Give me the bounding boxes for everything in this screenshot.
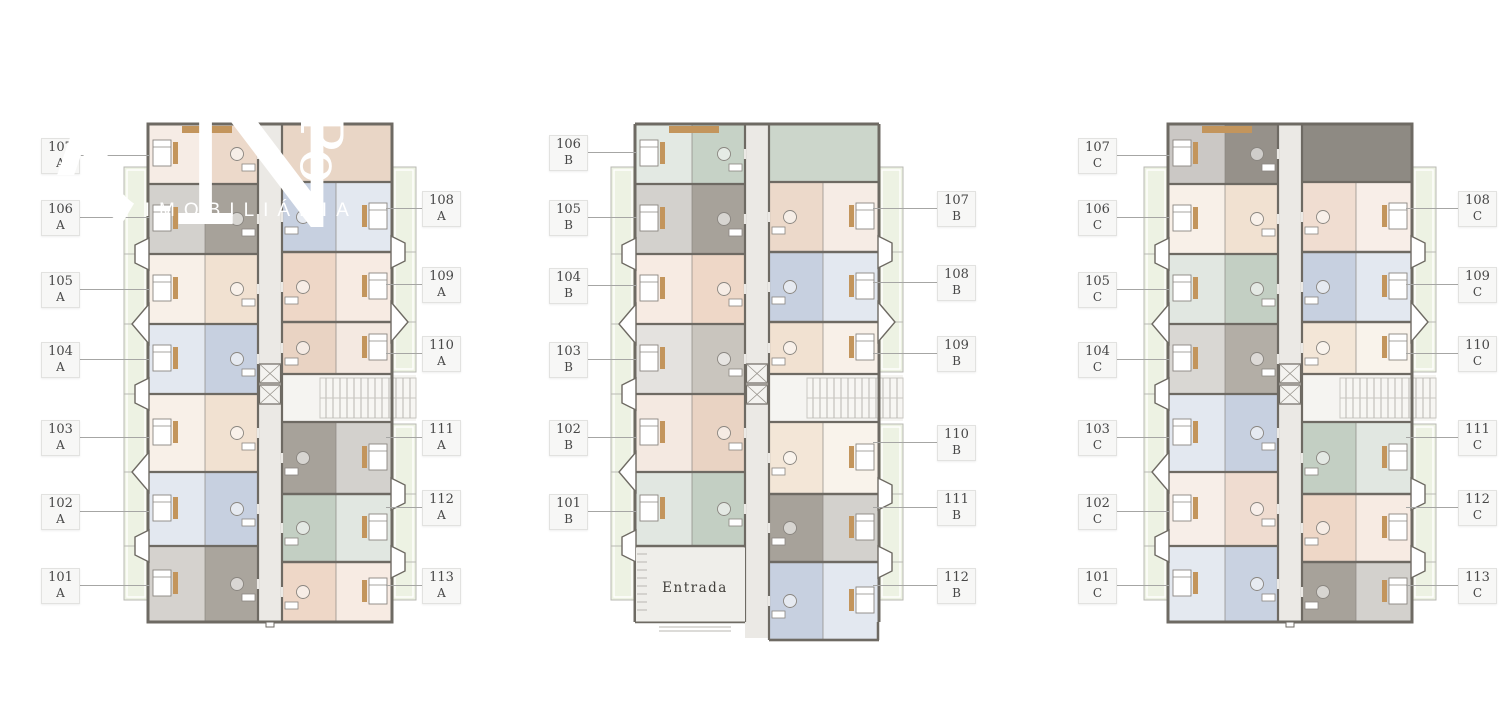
unit-label-110-C: 110C — [1458, 336, 1497, 372]
unit-label-105-C: 105C — [1078, 272, 1117, 308]
unit-label-102-C: 102C — [1078, 494, 1117, 530]
unit-block-letter: C — [1079, 290, 1116, 304]
unit-block-letter: A — [42, 438, 79, 452]
leader-line — [587, 152, 637, 153]
unit-label-113-C: 113C — [1458, 568, 1497, 604]
leader-line — [873, 442, 937, 443]
unit-number: 106 — [550, 137, 587, 153]
unit-number: 107 — [938, 193, 975, 209]
leader-line — [79, 289, 150, 290]
unit-number: 104 — [1079, 344, 1116, 360]
unit-number: 108 — [938, 267, 975, 283]
leader-line — [1406, 284, 1458, 285]
unit-block-letter: A — [42, 360, 79, 374]
unit-number: 110 — [423, 338, 460, 354]
unit-number: 111 — [938, 492, 975, 508]
leader-line — [386, 437, 422, 438]
unit-block-letter: C — [1079, 218, 1116, 232]
unit-block-letter: B — [550, 153, 587, 167]
leader-line — [79, 511, 150, 512]
unit-label-104-A: 104A — [41, 342, 80, 378]
leader-line — [79, 585, 150, 586]
entrance-lobby: Entrada — [636, 548, 745, 632]
unit-number: 106 — [42, 202, 79, 218]
unit-number: 106 — [1079, 202, 1116, 218]
unit-number: 102 — [1079, 496, 1116, 512]
unit-label-104-B: 104B — [549, 268, 588, 304]
unit-number: 109 — [423, 269, 460, 285]
leader-line — [1406, 353, 1458, 354]
unit-block-letter: B — [550, 218, 587, 232]
unit-block-letter: B — [938, 586, 975, 600]
unit-label-103-C: 103C — [1078, 420, 1117, 456]
leader-line — [79, 359, 150, 360]
stairs — [1303, 375, 1436, 421]
unit-number: 111 — [423, 422, 460, 438]
unit-block-letter: C — [1079, 512, 1116, 526]
leader-line — [386, 353, 422, 354]
units-left — [636, 124, 745, 546]
leader-line — [1116, 217, 1170, 218]
unit-label-112-B: 112B — [937, 568, 976, 604]
unit-block-letter: B — [938, 283, 975, 297]
unit-number: 102 — [42, 496, 79, 512]
unit-block-letter: C — [1459, 354, 1496, 368]
unit-number: 109 — [938, 338, 975, 354]
unit-number: 110 — [938, 427, 975, 443]
leader-line — [587, 217, 637, 218]
unit-number: 103 — [1079, 422, 1116, 438]
leader-line — [1116, 437, 1170, 438]
unit-number: 103 — [550, 344, 587, 360]
leader-line — [1116, 289, 1170, 290]
unit-block-letter: B — [550, 286, 587, 300]
unit-block-letter: C — [1459, 285, 1496, 299]
unit-number: 105 — [1079, 274, 1116, 290]
unit-block-letter: C — [1459, 209, 1496, 223]
leader-line — [1116, 359, 1170, 360]
unit-label-103-A: 103A — [41, 420, 80, 456]
unit-block-letter: C — [1459, 438, 1496, 452]
floorplan-svg-C — [1140, 122, 1440, 628]
unit-label-106-C: 106C — [1078, 200, 1117, 236]
unit-number: 108 — [1459, 193, 1496, 209]
unit-label-113-A: 113A — [422, 568, 461, 604]
unit-label-108-B: 108B — [937, 265, 976, 301]
unit-block-letter: B — [550, 438, 587, 452]
leader-line — [386, 585, 422, 586]
leader-line — [587, 437, 637, 438]
unit-block-letter: B — [938, 209, 975, 223]
unit-number: 112 — [938, 570, 975, 586]
unit-block-letter: A — [423, 285, 460, 299]
unit-label-112-A: 112A — [422, 490, 461, 526]
unit-block-letter: C — [1079, 156, 1116, 170]
leader-line — [873, 585, 937, 586]
unit-number: 107 — [1079, 140, 1116, 156]
unit-label-107-C: 107C — [1078, 138, 1117, 174]
leader-line — [1406, 585, 1458, 586]
unit-block-letter: C — [1079, 586, 1116, 600]
leader-line — [873, 208, 937, 209]
unit-number: 111 — [1459, 422, 1496, 438]
unit-label-110-A: 110A — [422, 336, 461, 372]
unit-block-letter: A — [423, 508, 460, 522]
unit-number: 104 — [550, 270, 587, 286]
unit-block-letter: A — [423, 438, 460, 452]
unit-block-letter: B — [938, 508, 975, 522]
unit-block-letter: A — [423, 354, 460, 368]
unit-number: 101 — [1079, 570, 1116, 586]
unit-label-110-B: 110B — [937, 425, 976, 461]
unit-block-letter: A — [42, 586, 79, 600]
unit-label-108-C: 108C — [1458, 191, 1497, 227]
unit-number: 113 — [423, 570, 460, 586]
unit-number: 109 — [1459, 269, 1496, 285]
unit-label-109-B: 109B — [937, 336, 976, 372]
unit-label-104-C: 104C — [1078, 342, 1117, 378]
unit-label-112-C: 112C — [1458, 490, 1497, 526]
leader-line — [1116, 155, 1170, 156]
unit-block-letter: A — [42, 290, 79, 304]
unit-label-101-B: 101B — [549, 494, 588, 530]
unit-label-102-A: 102A — [41, 494, 80, 530]
leader-line — [386, 208, 422, 209]
stairs — [283, 375, 416, 421]
unit-block-letter: A — [423, 586, 460, 600]
unit-number: 110 — [1459, 338, 1496, 354]
leader-line — [587, 285, 637, 286]
unit-number: 105 — [42, 274, 79, 290]
stairs — [770, 375, 903, 421]
unit-block-letter: C — [1459, 586, 1496, 600]
unit-number: 103 — [42, 422, 79, 438]
unit-label-109-A: 109A — [422, 267, 461, 303]
unit-number: 101 — [42, 570, 79, 586]
unit-label-106-B: 106B — [549, 135, 588, 171]
unit-number: 112 — [423, 492, 460, 508]
unit-label-111-C: 111C — [1458, 420, 1497, 456]
unit-label-101-C: 101C — [1078, 568, 1117, 604]
unit-number: 104 — [42, 344, 79, 360]
unit-number: 102 — [550, 422, 587, 438]
leader-line — [587, 511, 637, 512]
unit-block-letter: C — [1079, 438, 1116, 452]
unit-label-105-B: 105B — [549, 200, 588, 236]
leader-line — [1116, 585, 1170, 586]
unit-label-111-A: 111A — [422, 420, 461, 456]
unit-label-107-B: 107B — [937, 191, 976, 227]
unit-label-106-A: 106A — [41, 200, 80, 236]
unit-block-letter: C — [1459, 508, 1496, 522]
unit-block-letter: A — [42, 512, 79, 526]
entrada-label: Entrada — [662, 580, 728, 596]
floorplan-svg-B: Entrada — [607, 122, 907, 646]
leader-line — [79, 437, 150, 438]
unit-label-108-A: 108A — [422, 191, 461, 227]
unit-number: 105 — [550, 202, 587, 218]
unit-number: 108 — [423, 193, 460, 209]
leader-line — [587, 359, 637, 360]
unit-block-letter: B — [550, 360, 587, 374]
unit-label-109-C: 109C — [1458, 267, 1497, 303]
leader-line — [386, 507, 422, 508]
leader-line — [1116, 511, 1170, 512]
unit-label-102-B: 102B — [549, 420, 588, 456]
leader-line — [386, 284, 422, 285]
unit-label-105-A: 105A — [41, 272, 80, 308]
unit-block-letter: B — [938, 354, 975, 368]
unit-number: 112 — [1459, 492, 1496, 508]
floorplan-building-c — [1140, 122, 1440, 632]
unit-block-letter: C — [1079, 360, 1116, 374]
unit-number: 113 — [1459, 570, 1496, 586]
leader-line — [873, 353, 937, 354]
leader-line — [1406, 208, 1458, 209]
leader-line — [873, 507, 937, 508]
unit-block-letter: A — [423, 209, 460, 223]
unit-block-letter: A — [42, 218, 79, 232]
unit-block-letter: B — [550, 512, 587, 526]
unit-label-111-B: 111B — [937, 490, 976, 526]
unit-number: 101 — [550, 496, 587, 512]
unit-label-101-A: 101A — [41, 568, 80, 604]
leader-line — [1406, 507, 1458, 508]
floorplan-building-b: Entrada — [607, 122, 907, 650]
unit-block-letter: B — [938, 443, 975, 457]
unit-label-103-B: 103B — [549, 342, 588, 378]
leader-line — [873, 282, 937, 283]
floorplan-sheet: N Po ÃO IMOBILIÁRIA 107A106A105A104A103A… — [0, 0, 1500, 727]
leader-line — [1406, 437, 1458, 438]
